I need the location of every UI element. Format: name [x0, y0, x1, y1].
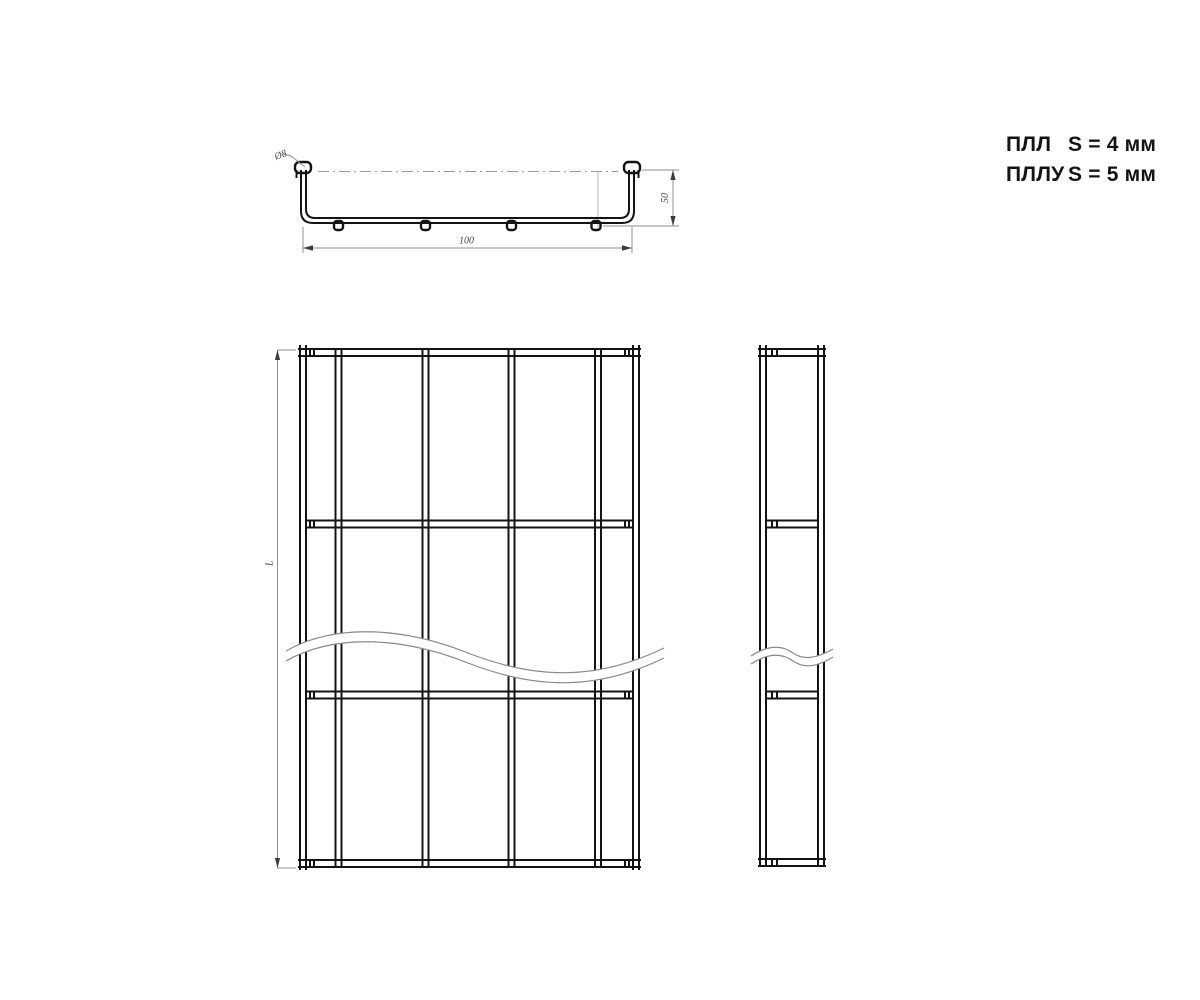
break-line: [751, 647, 833, 666]
longitudinal-wires: [336, 350, 602, 866]
dimension-width: 100: [303, 227, 632, 253]
front-view: L: [265, 346, 665, 869]
length-dim-label: L: [265, 560, 276, 567]
edge-wire-right: [624, 162, 640, 177]
technical-drawing: Ø8 100 50: [0, 0, 1200, 1000]
wire-diameter-label: Ø8: [272, 148, 288, 163]
dimension-length: L: [265, 350, 297, 868]
dimension-wire-diameter: Ø8: [272, 148, 305, 167]
drawing-canvas: ПЛЛ S = 4 мм ПЛЛУ S = 5 мм: [0, 0, 1200, 1000]
edge-wire-left: [295, 162, 311, 177]
side-view: [751, 346, 833, 866]
section-view: Ø8 100 50: [272, 148, 679, 253]
height-dim-label: 50: [660, 193, 671, 203]
transverse-wires: [299, 349, 640, 867]
break-line: [286, 632, 664, 683]
width-dim-label: 100: [459, 236, 474, 247]
